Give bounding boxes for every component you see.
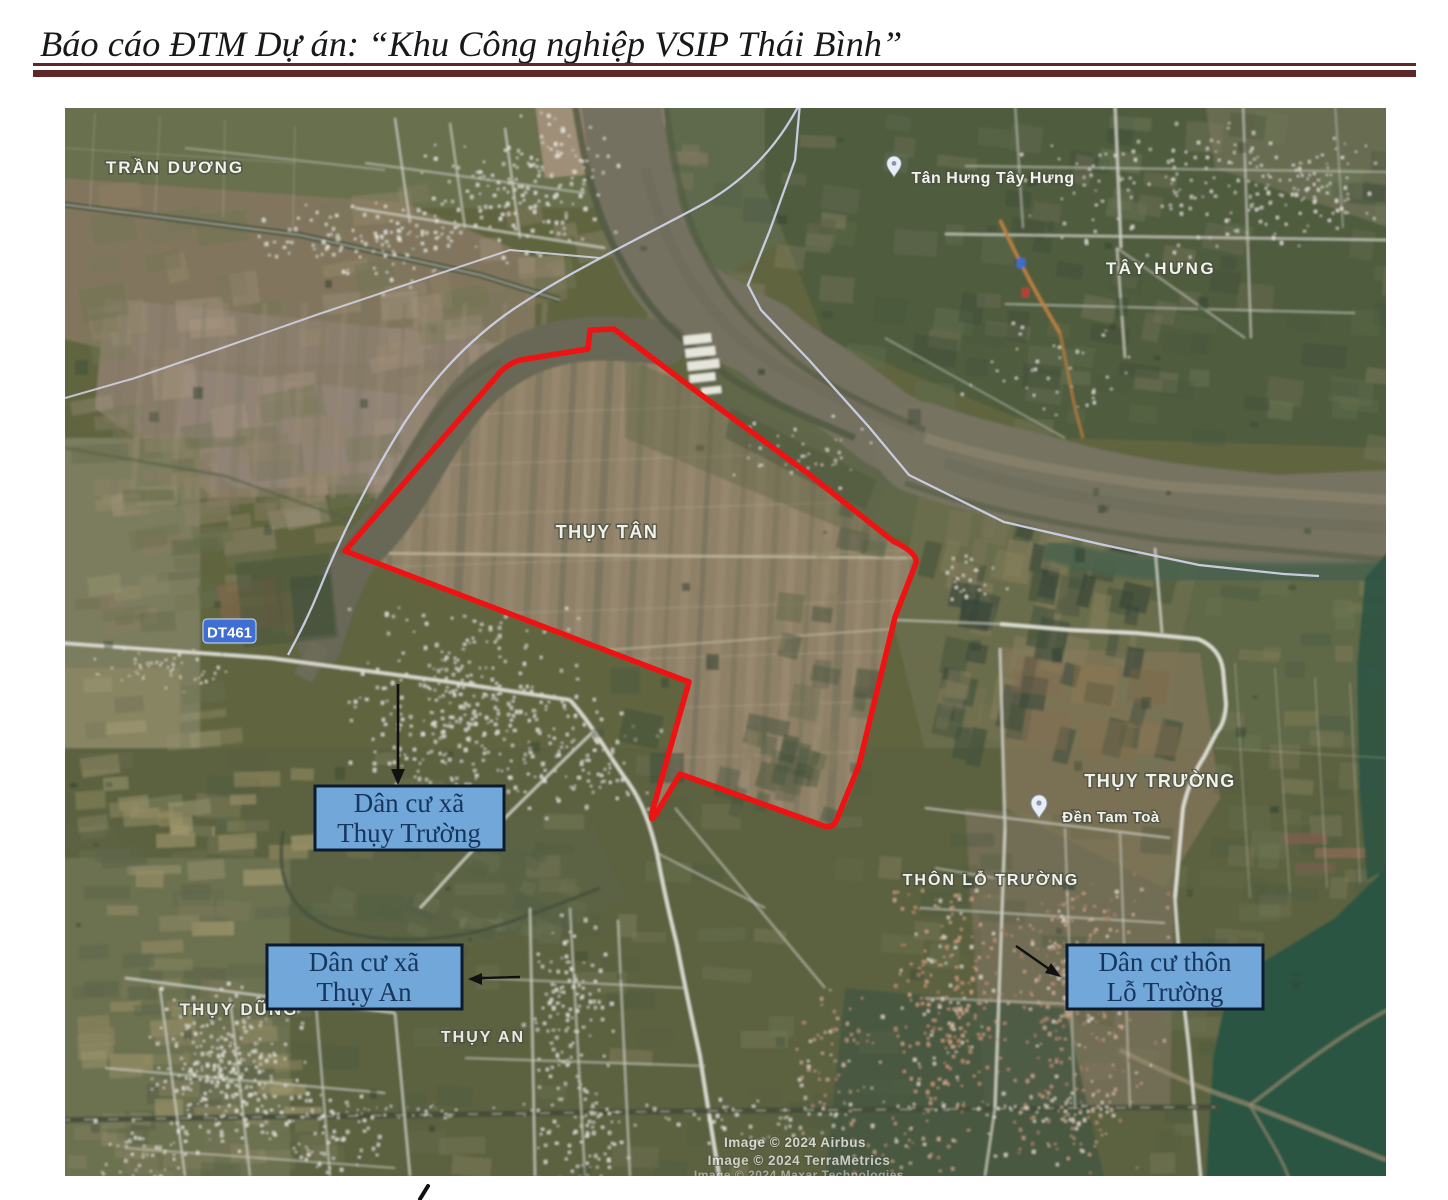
svg-text:THỤY TÂN: THỤY TÂN: [556, 521, 659, 542]
svg-text:Dân cư thôn: Dân cư thôn: [1098, 947, 1232, 977]
svg-text:THÔN LỖ TRƯỜNG: THÔN LỖ TRƯỜNG: [903, 870, 1080, 889]
svg-text:DT461: DT461: [207, 625, 252, 642]
svg-text:Dân cư xã: Dân cư xã: [354, 788, 465, 818]
svg-text:TÂY HƯNG: TÂY HƯNG: [1106, 259, 1216, 278]
svg-text:Tân Hưng Tây Hưng: Tân Hưng Tây Hưng: [911, 170, 1074, 187]
svg-text:Image © 2024 Airbus: Image © 2024 Airbus: [724, 1135, 866, 1150]
svg-text:Đền Tam Toà: Đền Tam Toà: [1062, 809, 1160, 826]
svg-text:Image © 2024 Maxar Technologie: Image © 2024 Maxar Technologies: [694, 1168, 904, 1176]
svg-text:THỤY AN: THỤY AN: [441, 1029, 525, 1046]
svg-text:THỤY TRƯỜNG: THỤY TRƯỜNG: [1084, 770, 1235, 791]
svg-text:Image © 2024 TerraMetrics: Image © 2024 TerraMetrics: [708, 1153, 891, 1168]
svg-text:TRẦN DƯƠNG: TRẦN DƯƠNG: [106, 158, 244, 177]
svg-text:Lỗ Trường: Lỗ Trường: [1107, 977, 1224, 1007]
svg-text:Dân cư xã: Dân cư xã: [309, 947, 420, 977]
svg-text:Thụy Trường: Thụy Trường: [337, 818, 481, 848]
svg-text:Thụy An: Thụy An: [316, 977, 412, 1007]
